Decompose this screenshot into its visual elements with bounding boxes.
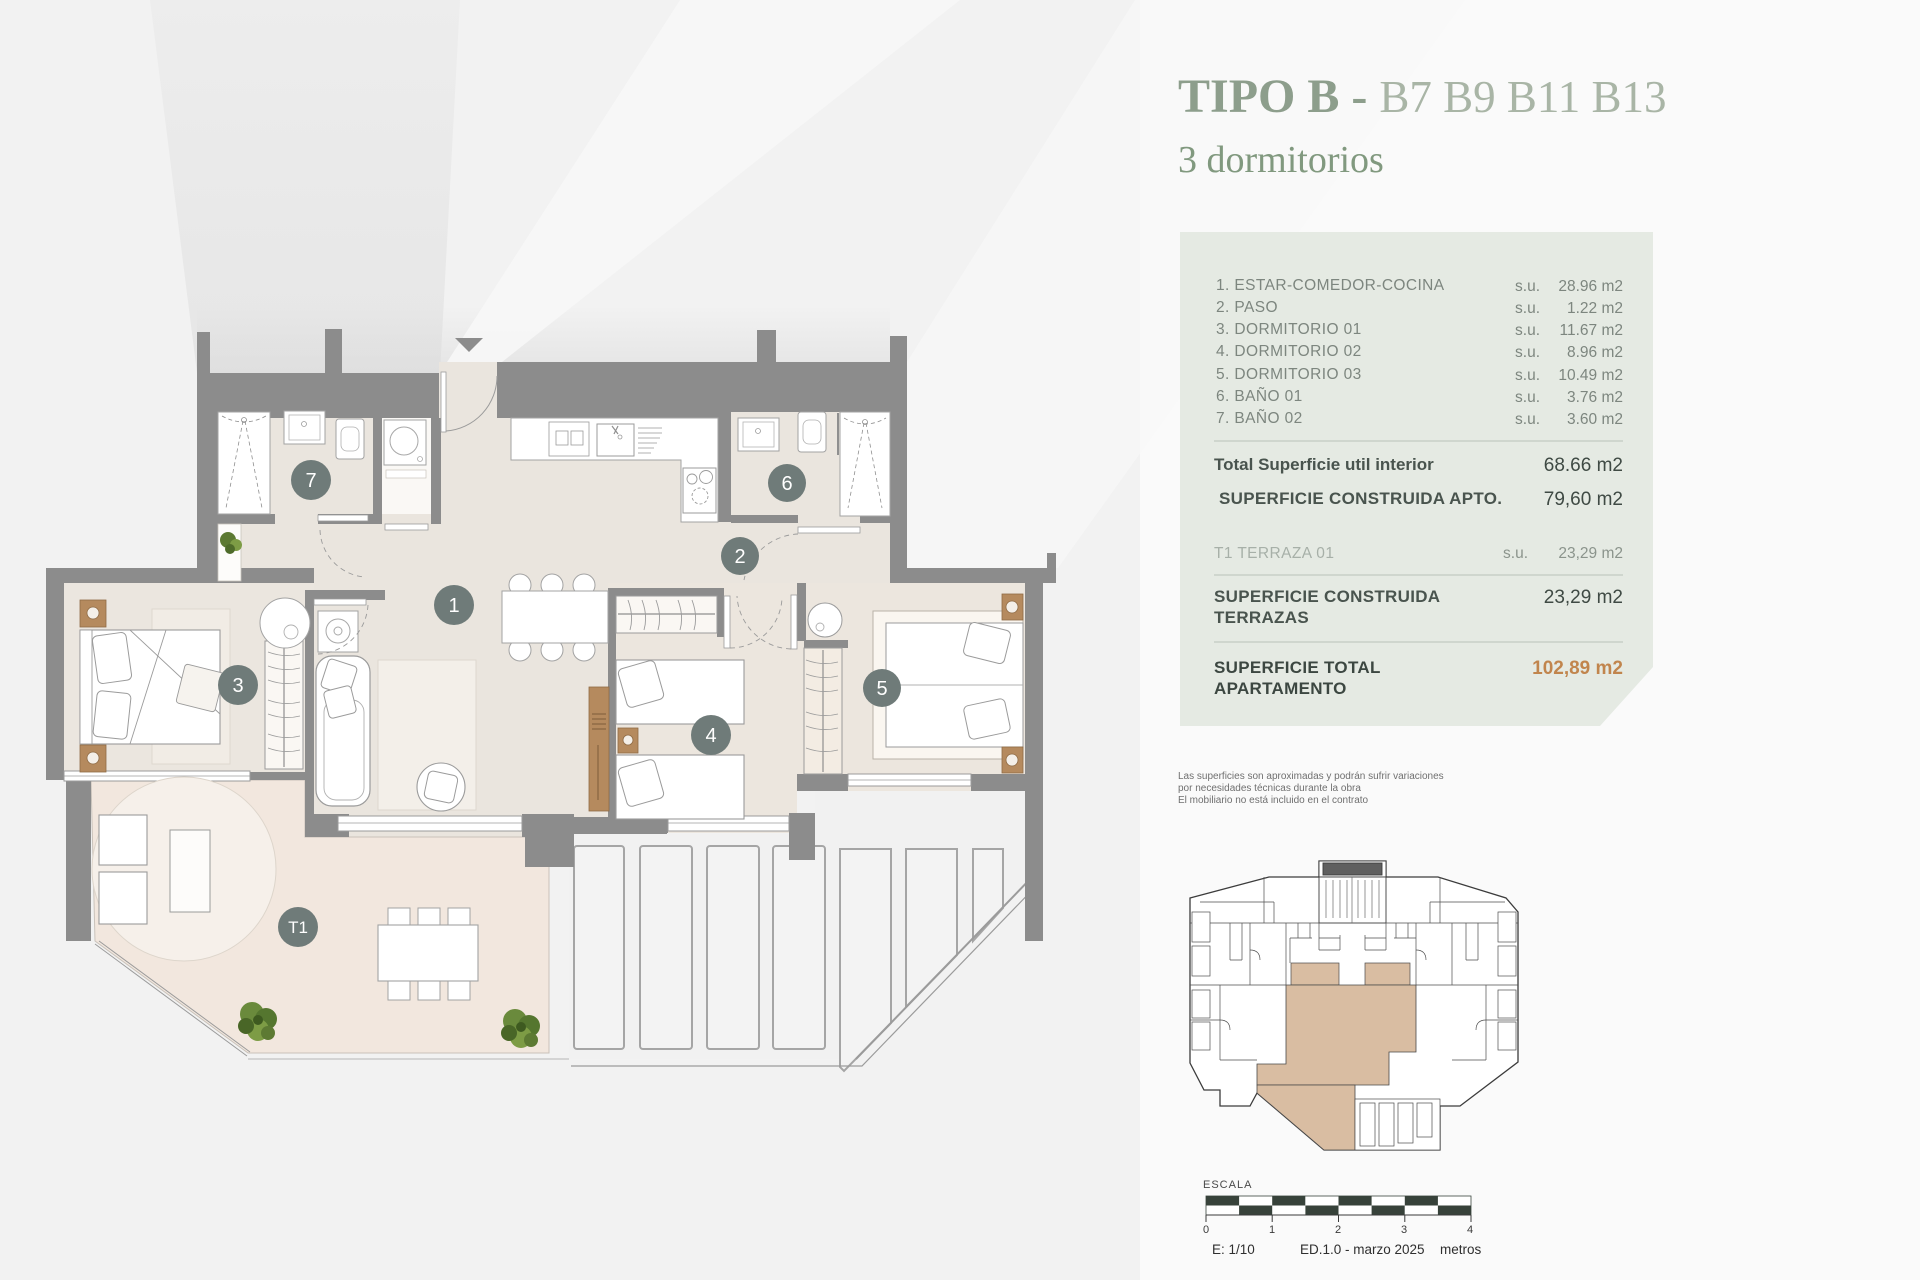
- svg-text:2: 2: [1335, 1224, 1341, 1236]
- svg-text:23,29 m2: 23,29 m2: [1544, 587, 1623, 608]
- svg-text:102,89 m2: 102,89 m2: [1532, 658, 1623, 679]
- svg-text:ED.1.0 - marzo 2025: ED.1.0 - marzo 2025: [1300, 1242, 1425, 1257]
- svg-text:TIPO B - B7 B9 B11 B13: TIPO B - B7 B9 B11 B13: [1178, 70, 1667, 123]
- svg-text:4. DORMITORIO 02: 4. DORMITORIO 02: [1216, 343, 1362, 360]
- svg-text:3: 3: [232, 675, 243, 697]
- svg-text:s.u.: s.u.: [1515, 344, 1540, 361]
- svg-text:s.u.: s.u.: [1515, 411, 1540, 428]
- svg-text:Las superficies son aproximada: Las superficies son aproximadas y podrán…: [1178, 771, 1444, 782]
- svg-text:4: 4: [1467, 1224, 1473, 1236]
- svg-text:1.22 m2: 1.22 m2: [1567, 300, 1623, 317]
- svg-text:s.u.: s.u.: [1515, 322, 1540, 339]
- svg-text:3.76 m2: 3.76 m2: [1567, 389, 1623, 406]
- svg-text:metros: metros: [1440, 1242, 1482, 1257]
- svg-text:8.96 m2: 8.96 m2: [1567, 344, 1623, 361]
- svg-text:10.49 m2: 10.49 m2: [1558, 367, 1623, 384]
- svg-text:SUPERFICIE CONSTRUIDA APTO.: SUPERFICIE CONSTRUIDA APTO.: [1219, 489, 1502, 508]
- svg-text:3 dormitorios: 3 dormitorios: [1178, 139, 1384, 181]
- svg-text:por necesidades técnicas duran: por necesidades técnicas durante la obra: [1178, 783, 1361, 794]
- svg-text:28.96 m2: 28.96 m2: [1558, 278, 1623, 295]
- svg-text:0: 0: [1203, 1224, 1209, 1236]
- svg-text:4: 4: [705, 725, 716, 747]
- svg-text:ESCALA: ESCALA: [1203, 1179, 1252, 1191]
- svg-text:s.u.: s.u.: [1503, 545, 1528, 562]
- svg-text:1: 1: [448, 595, 459, 617]
- svg-text:23,29 m2: 23,29 m2: [1558, 545, 1623, 562]
- svg-text:3: 3: [1401, 1224, 1407, 1236]
- svg-text:5. DORMITORIO 03: 5. DORMITORIO 03: [1216, 366, 1362, 383]
- svg-text:6: 6: [781, 473, 792, 495]
- svg-text:El mobiliario no está incluido: El mobiliario no está incluido en el con…: [1178, 795, 1369, 806]
- svg-text:11.67 m2: 11.67 m2: [1560, 322, 1623, 339]
- svg-text:APARTAMENTO: APARTAMENTO: [1214, 679, 1347, 698]
- svg-text:T1: T1: [288, 918, 308, 937]
- svg-text:2: 2: [734, 546, 745, 568]
- svg-text:1. ESTAR-COMEDOR-COCINA: 1. ESTAR-COMEDOR-COCINA: [1216, 277, 1445, 294]
- svg-text:1: 1: [1269, 1224, 1275, 1236]
- svg-text:3. DORMITORIO 01: 3. DORMITORIO 01: [1216, 321, 1362, 338]
- svg-text:s.u.: s.u.: [1515, 389, 1540, 406]
- svg-text:SUPERFICIE TOTAL: SUPERFICIE TOTAL: [1214, 658, 1381, 677]
- svg-text:5: 5: [876, 678, 887, 700]
- svg-text:6. BAÑO 01: 6. BAÑO 01: [1216, 388, 1303, 405]
- svg-text:TERRAZAS: TERRAZAS: [1214, 608, 1309, 627]
- svg-text:s.u.: s.u.: [1515, 367, 1540, 384]
- svg-text:68.66 m2: 68.66 m2: [1544, 455, 1623, 476]
- svg-text:Total Superficie util interior: Total Superficie util interior: [1214, 455, 1434, 474]
- svg-text:7: 7: [305, 470, 316, 492]
- svg-text:SUPERFICIE CONSTRUIDA: SUPERFICIE CONSTRUIDA: [1214, 587, 1440, 606]
- svg-text:79,60 m2: 79,60 m2: [1544, 489, 1623, 510]
- svg-text:E: 1/10: E: 1/10: [1212, 1242, 1255, 1257]
- svg-text:7. BAÑO 02: 7. BAÑO 02: [1216, 410, 1303, 427]
- svg-text:2. PASO: 2. PASO: [1216, 299, 1278, 316]
- svg-text:s.u.: s.u.: [1515, 300, 1540, 317]
- svg-text:T1 TERRAZA 01: T1 TERRAZA 01: [1214, 545, 1334, 562]
- svg-text:s.u.: s.u.: [1515, 278, 1540, 295]
- svg-text:3.60 m2: 3.60 m2: [1567, 411, 1623, 428]
